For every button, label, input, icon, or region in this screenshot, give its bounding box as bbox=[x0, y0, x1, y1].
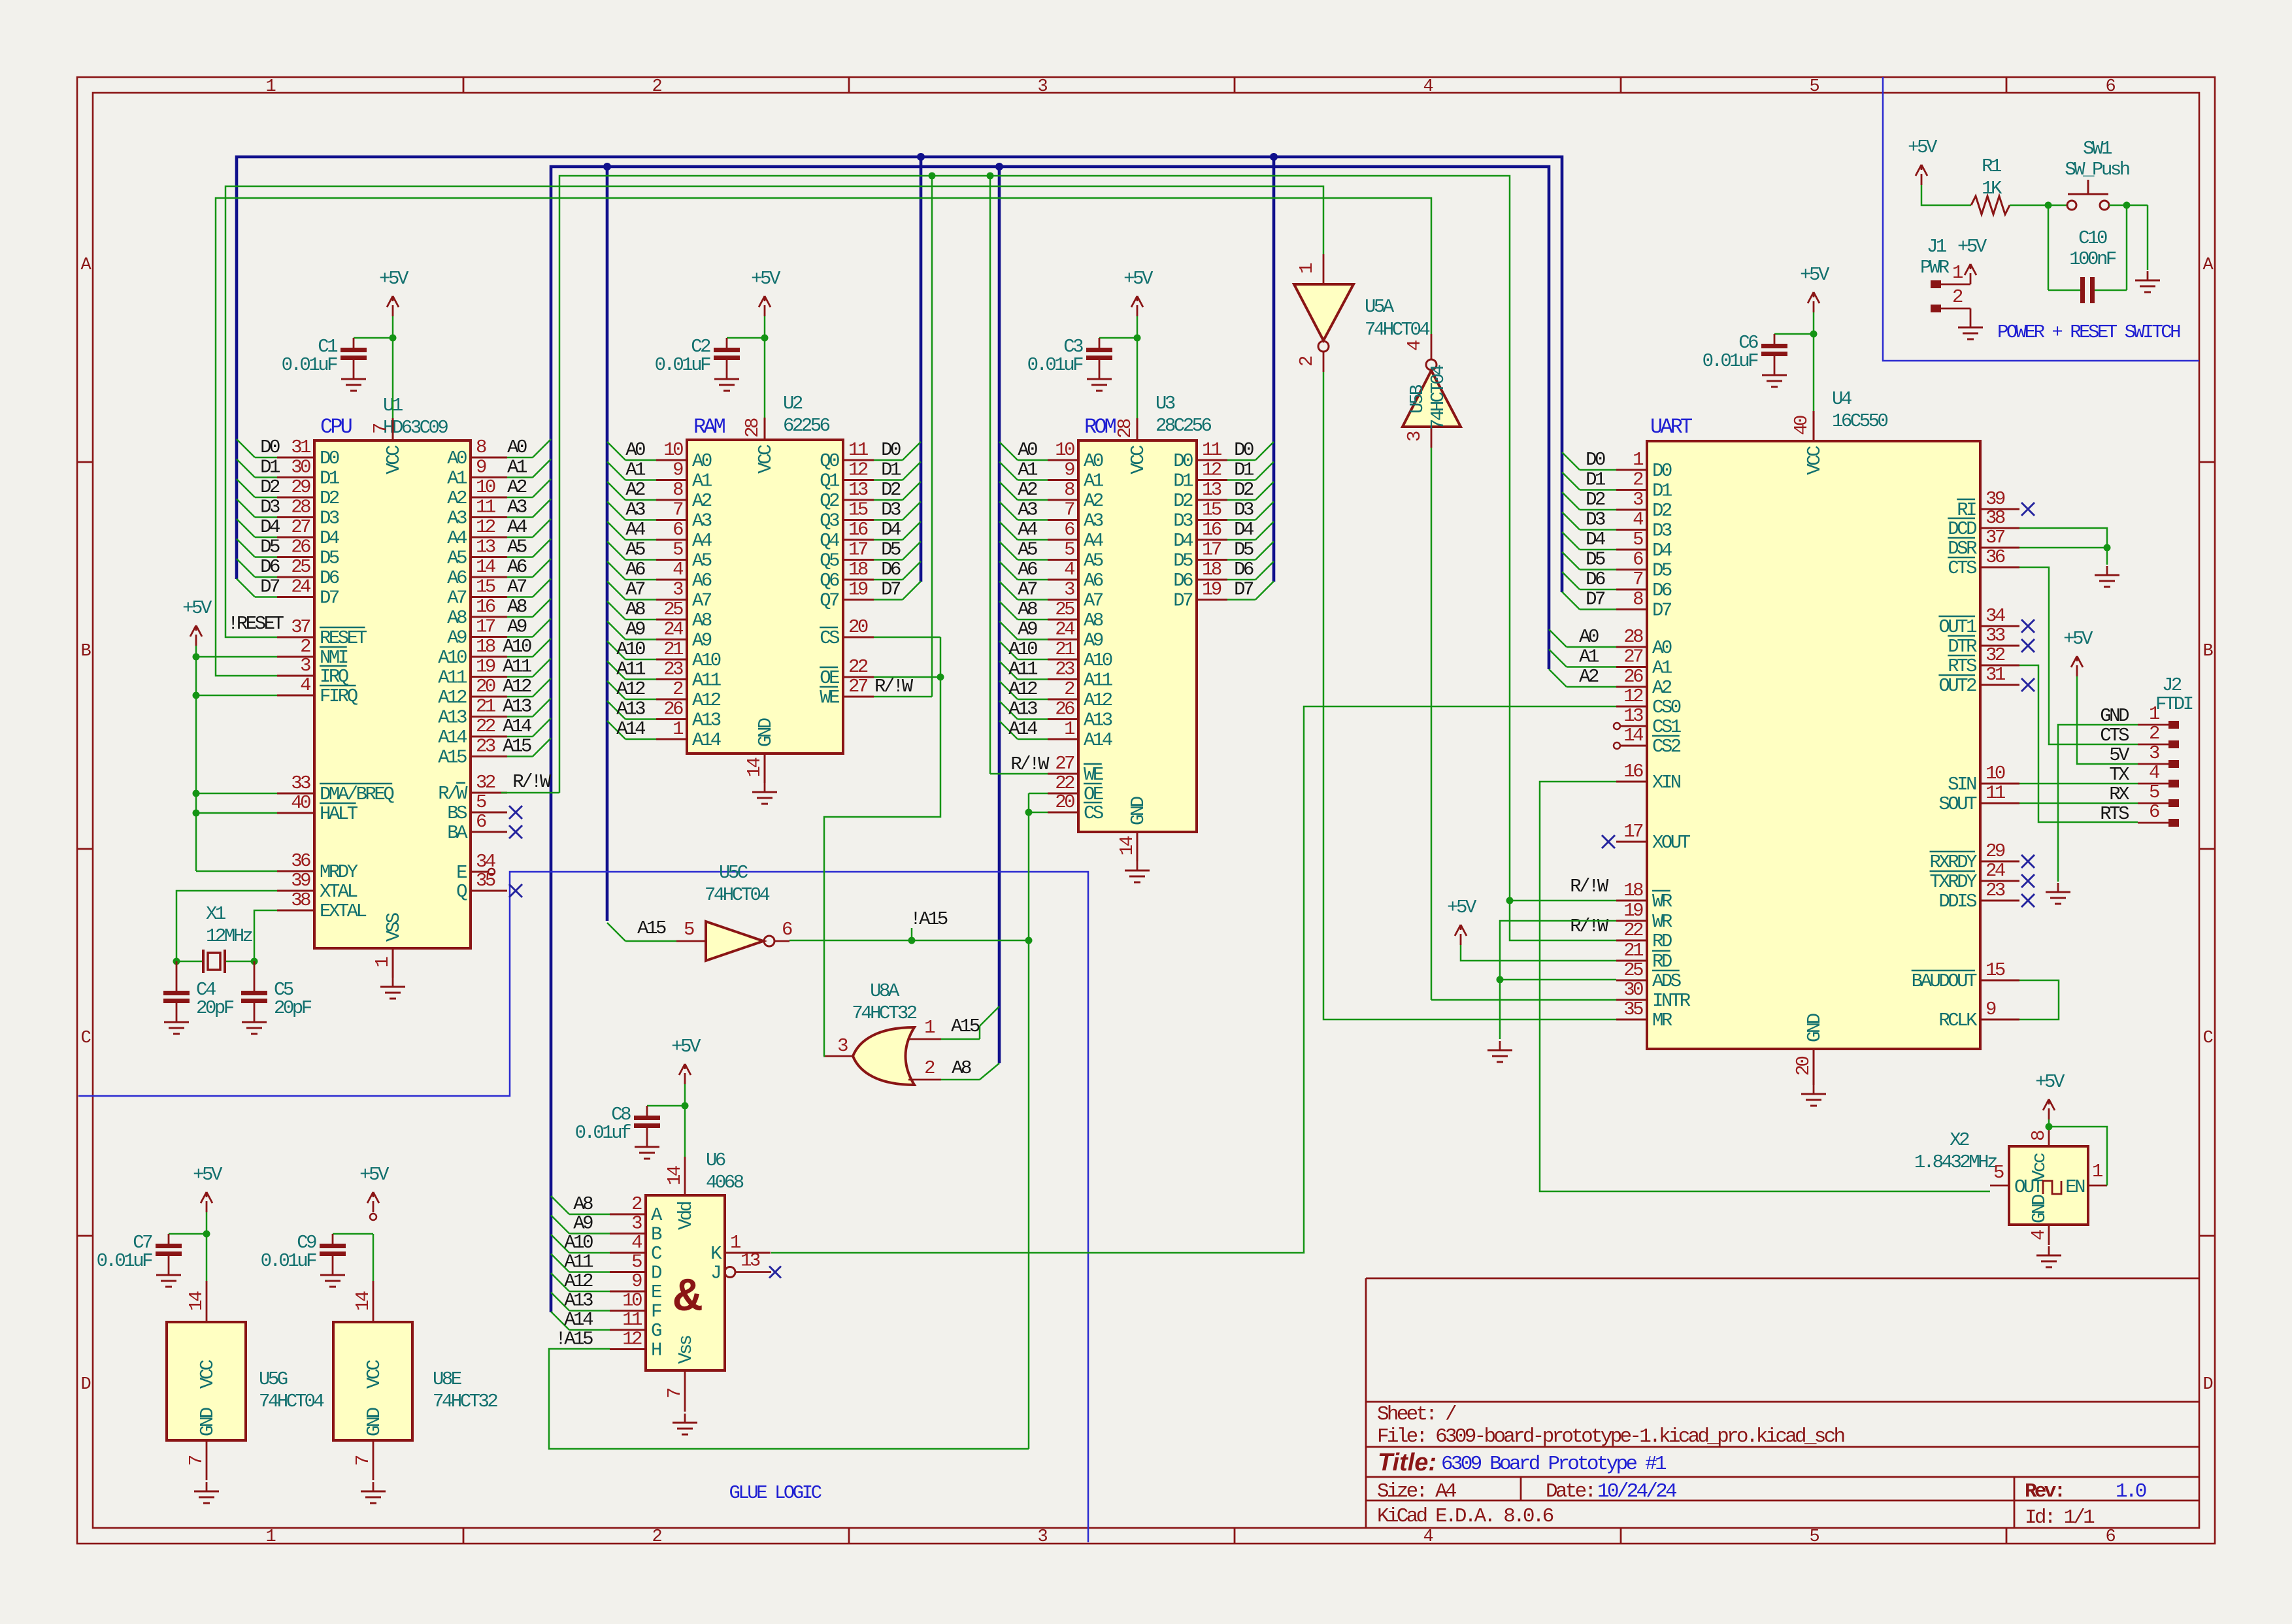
svg-text:13: 13 bbox=[740, 1250, 760, 1272]
svg-text:20: 20 bbox=[1055, 791, 1074, 813]
svg-text:A7: A7 bbox=[625, 579, 645, 601]
svg-text:A15: A15 bbox=[951, 1016, 980, 1037]
svg-text:40: 40 bbox=[291, 792, 310, 814]
svg-text:A3: A3 bbox=[507, 497, 527, 518]
svg-text:21: 21 bbox=[476, 696, 495, 718]
svg-text:11: 11 bbox=[1202, 439, 1221, 461]
svg-text:3: 3 bbox=[1038, 1527, 1048, 1547]
svg-text:5: 5 bbox=[1633, 529, 1643, 550]
svg-text:17: 17 bbox=[1202, 539, 1221, 561]
svg-text:CTS: CTS bbox=[2100, 725, 2129, 746]
svg-text:14: 14 bbox=[476, 556, 495, 578]
svg-text:6: 6 bbox=[2106, 1527, 2116, 1547]
svg-text:2: 2 bbox=[1296, 356, 1318, 367]
svg-text:RCLK: RCLK bbox=[1938, 1010, 1978, 1031]
svg-text:Q2: Q2 bbox=[820, 490, 839, 512]
svg-text:Size: A4: Size: A4 bbox=[1377, 1480, 1457, 1503]
svg-text:BS: BS bbox=[447, 803, 467, 824]
svg-text:25: 25 bbox=[1055, 599, 1074, 620]
svg-text:13: 13 bbox=[1623, 705, 1643, 727]
svg-text:8: 8 bbox=[2028, 1131, 2050, 1141]
svg-text:U3: U3 bbox=[1155, 393, 1175, 414]
svg-text:A5: A5 bbox=[447, 548, 467, 569]
svg-text:MRDY: MRDY bbox=[320, 861, 358, 883]
svg-text:!A15: !A15 bbox=[555, 1329, 593, 1350]
svg-text:A13: A13 bbox=[564, 1290, 593, 1312]
svg-text:A9: A9 bbox=[1084, 630, 1103, 652]
svg-text:A13: A13 bbox=[692, 710, 721, 731]
svg-text:U5A: U5A bbox=[1365, 296, 1395, 318]
svg-text:74HCT04: 74HCT04 bbox=[259, 1391, 324, 1412]
svg-text:Q4: Q4 bbox=[820, 530, 839, 552]
svg-text:9: 9 bbox=[1064, 459, 1074, 481]
svg-text:D5: D5 bbox=[320, 548, 339, 569]
svg-text:12: 12 bbox=[1623, 686, 1643, 707]
svg-text:D4: D4 bbox=[1652, 540, 1672, 561]
svg-text:14: 14 bbox=[1116, 836, 1138, 855]
svg-text:0.01uf: 0.01uf bbox=[575, 1122, 631, 1144]
svg-text:23: 23 bbox=[1985, 880, 2005, 901]
svg-text:A9: A9 bbox=[447, 627, 467, 649]
svg-text:D3: D3 bbox=[1173, 510, 1193, 532]
svg-text:1: 1 bbox=[1952, 262, 1963, 284]
svg-text:5: 5 bbox=[2149, 782, 2159, 803]
svg-text:Q1: Q1 bbox=[820, 471, 839, 492]
svg-text:A12: A12 bbox=[616, 678, 645, 700]
svg-text:36: 36 bbox=[291, 850, 310, 872]
svg-text:CS0: CS0 bbox=[1652, 697, 1681, 718]
svg-text:RX: RX bbox=[2109, 784, 2129, 805]
svg-text:BA: BA bbox=[447, 822, 468, 844]
svg-text:28: 28 bbox=[1623, 626, 1643, 648]
svg-text:A12: A12 bbox=[438, 687, 467, 708]
svg-text:21: 21 bbox=[1055, 638, 1074, 660]
svg-text:A0: A0 bbox=[1084, 450, 1103, 472]
svg-text:25: 25 bbox=[291, 556, 310, 578]
svg-text:+5V: +5V bbox=[182, 597, 212, 619]
svg-text:A8: A8 bbox=[692, 610, 712, 631]
svg-text:3: 3 bbox=[673, 579, 683, 601]
svg-text:1: 1 bbox=[372, 957, 393, 967]
svg-text:15: 15 bbox=[476, 576, 495, 598]
svg-text:GND: GND bbox=[197, 1408, 218, 1436]
svg-text:38: 38 bbox=[291, 889, 310, 911]
svg-text:6: 6 bbox=[1633, 549, 1643, 571]
svg-text:8: 8 bbox=[673, 479, 683, 501]
svg-text:1.0: 1.0 bbox=[2116, 1480, 2146, 1503]
svg-text:+5V: +5V bbox=[1957, 236, 1987, 257]
svg-text:A14: A14 bbox=[616, 718, 645, 740]
svg-text:GND: GND bbox=[1804, 1014, 1825, 1042]
svg-text:A6: A6 bbox=[625, 559, 645, 580]
svg-text:A1: A1 bbox=[447, 468, 467, 489]
svg-text:XIN: XIN bbox=[1652, 772, 1681, 793]
svg-text:A4: A4 bbox=[692, 530, 712, 552]
svg-text:18: 18 bbox=[848, 559, 868, 580]
svg-text:A3: A3 bbox=[625, 499, 645, 521]
svg-text:0.01uF: 0.01uF bbox=[282, 354, 338, 376]
svg-text:MR: MR bbox=[1652, 1010, 1672, 1031]
svg-text:6: 6 bbox=[782, 919, 792, 940]
svg-text:5: 5 bbox=[673, 539, 683, 561]
svg-text:D1: D1 bbox=[320, 468, 339, 489]
svg-text:0.01uF: 0.01uF bbox=[261, 1250, 317, 1272]
svg-text:A8: A8 bbox=[625, 599, 645, 620]
svg-text:20: 20 bbox=[848, 616, 868, 638]
svg-text:WE: WE bbox=[820, 687, 839, 708]
svg-text:Vdd: Vdd bbox=[675, 1202, 697, 1230]
svg-text:+5V: +5V bbox=[1123, 268, 1154, 290]
svg-text:+5V: +5V bbox=[359, 1164, 390, 1185]
svg-text:DSR: DSR bbox=[1948, 538, 1977, 559]
svg-text:10: 10 bbox=[1055, 439, 1074, 461]
svg-text:U8A: U8A bbox=[870, 980, 900, 1002]
svg-text:11: 11 bbox=[476, 497, 495, 518]
svg-text:26: 26 bbox=[663, 699, 683, 720]
svg-text:A15: A15 bbox=[503, 736, 531, 757]
svg-text:GND: GND bbox=[2100, 705, 2129, 727]
svg-text:INTR: INTR bbox=[1652, 990, 1691, 1012]
svg-text:4: 4 bbox=[1423, 1527, 1433, 1547]
svg-text:6: 6 bbox=[673, 519, 683, 540]
svg-text:TXRDY: TXRDY bbox=[1929, 871, 1977, 893]
svg-text:RESET: RESET bbox=[320, 627, 367, 649]
svg-text:D1: D1 bbox=[1586, 469, 1605, 491]
svg-text:28: 28 bbox=[291, 497, 310, 518]
svg-text:32: 32 bbox=[476, 772, 495, 793]
svg-text:D3: D3 bbox=[1652, 520, 1672, 542]
svg-text:D6: D6 bbox=[1234, 559, 1254, 580]
svg-text:D4: D4 bbox=[881, 519, 901, 540]
svg-text:A14: A14 bbox=[1008, 718, 1037, 740]
svg-text:27: 27 bbox=[1623, 646, 1643, 668]
svg-text:28: 28 bbox=[1114, 419, 1136, 439]
svg-text:A0: A0 bbox=[1018, 439, 1037, 461]
svg-text:R/!W: R/!W bbox=[1570, 876, 1609, 897]
svg-text:Vcc: Vcc bbox=[2029, 1153, 2050, 1182]
svg-text:0.01uF: 0.01uF bbox=[655, 354, 711, 376]
svg-text:25: 25 bbox=[663, 599, 683, 620]
svg-text:UART: UART bbox=[1650, 415, 1692, 439]
svg-text:D: D bbox=[2203, 1375, 2213, 1395]
svg-text:A14: A14 bbox=[1084, 729, 1112, 751]
svg-text:A15: A15 bbox=[438, 747, 467, 769]
svg-text:D6: D6 bbox=[881, 559, 901, 580]
svg-text:D: D bbox=[651, 1263, 661, 1284]
svg-text:20pF: 20pF bbox=[196, 997, 234, 1019]
svg-text:+5V: +5V bbox=[2035, 1071, 2065, 1093]
svg-text:37: 37 bbox=[1985, 527, 2005, 548]
svg-text:3: 3 bbox=[1633, 489, 1643, 510]
svg-text:1: 1 bbox=[1064, 718, 1074, 740]
svg-text:D0: D0 bbox=[1173, 450, 1193, 472]
svg-text:5: 5 bbox=[1993, 1162, 2004, 1184]
svg-text:GND: GND bbox=[2029, 1195, 2050, 1223]
svg-text:VCC: VCC bbox=[755, 444, 776, 474]
svg-text:D5: D5 bbox=[1234, 539, 1254, 561]
svg-text:4: 4 bbox=[300, 674, 310, 696]
svg-text:5: 5 bbox=[1810, 1527, 1819, 1547]
svg-text:9: 9 bbox=[631, 1270, 642, 1292]
svg-text:U2: U2 bbox=[783, 393, 803, 414]
svg-text:8: 8 bbox=[1633, 589, 1643, 610]
svg-text:A10: A10 bbox=[692, 650, 721, 671]
svg-text:D2: D2 bbox=[260, 476, 280, 498]
svg-text:Date:: Date: bbox=[1546, 1480, 1594, 1503]
svg-text:23: 23 bbox=[476, 736, 495, 757]
svg-text:D3: D3 bbox=[1586, 509, 1605, 531]
svg-text:6: 6 bbox=[476, 811, 486, 833]
svg-text:A10: A10 bbox=[564, 1232, 593, 1253]
svg-text:RAM: RAM bbox=[693, 415, 725, 439]
svg-text:14: 14 bbox=[744, 757, 765, 777]
svg-text:R/!W: R/!W bbox=[512, 771, 552, 793]
svg-text:100nF: 100nF bbox=[2069, 248, 2116, 270]
svg-text:28: 28 bbox=[742, 418, 763, 438]
svg-text:DCD: DCD bbox=[1948, 518, 1976, 540]
svg-text:19: 19 bbox=[1202, 579, 1221, 601]
svg-text:D0: D0 bbox=[1652, 460, 1672, 482]
svg-text:8: 8 bbox=[476, 437, 486, 458]
svg-text:E: E bbox=[651, 1282, 661, 1303]
svg-text:D1: D1 bbox=[1173, 471, 1193, 492]
svg-text:A5: A5 bbox=[1084, 550, 1103, 572]
svg-text:A2: A2 bbox=[1652, 677, 1672, 699]
svg-text:5: 5 bbox=[1064, 539, 1074, 561]
svg-text:10: 10 bbox=[622, 1290, 642, 1312]
svg-text:A5: A5 bbox=[1018, 539, 1037, 561]
svg-text:26: 26 bbox=[291, 537, 310, 558]
svg-text:24: 24 bbox=[1055, 619, 1074, 640]
svg-text:14: 14 bbox=[186, 1291, 207, 1311]
svg-text:1: 1 bbox=[2092, 1161, 2102, 1182]
svg-text:7: 7 bbox=[664, 1388, 686, 1399]
svg-text:A9: A9 bbox=[625, 619, 645, 640]
svg-text:RTS: RTS bbox=[1948, 655, 1976, 677]
svg-text:Title:: Title: bbox=[1378, 1449, 1437, 1476]
svg-text:29: 29 bbox=[1985, 840, 2005, 862]
svg-text:D2: D2 bbox=[320, 488, 339, 509]
svg-text:OUT1: OUT1 bbox=[1938, 616, 1976, 638]
svg-text:5: 5 bbox=[631, 1251, 642, 1273]
svg-text:36: 36 bbox=[1985, 546, 2005, 568]
svg-text:SOUT: SOUT bbox=[1938, 793, 1977, 815]
svg-text:Sheet: /: Sheet: / bbox=[1377, 1403, 1456, 1426]
svg-text:A14: A14 bbox=[692, 729, 721, 751]
svg-text:A6: A6 bbox=[1084, 570, 1103, 591]
svg-text:D6: D6 bbox=[320, 567, 339, 589]
svg-text:A9: A9 bbox=[692, 630, 712, 652]
svg-text:14: 14 bbox=[1623, 725, 1643, 746]
svg-text:1: 1 bbox=[673, 718, 683, 740]
svg-text:SW_Push: SW_Push bbox=[2065, 159, 2129, 180]
svg-text:15: 15 bbox=[848, 499, 868, 521]
svg-text:A2: A2 bbox=[625, 479, 645, 501]
svg-text:CS: CS bbox=[820, 627, 839, 649]
svg-text:A3: A3 bbox=[692, 510, 712, 532]
svg-text:74HCT32: 74HCT32 bbox=[852, 1003, 916, 1024]
svg-text:11: 11 bbox=[1985, 782, 2005, 804]
svg-text:12: 12 bbox=[1202, 459, 1221, 481]
svg-text:15: 15 bbox=[1985, 959, 2005, 981]
svg-text:20: 20 bbox=[476, 676, 495, 697]
svg-text:4: 4 bbox=[1404, 340, 1425, 351]
svg-text:A2: A2 bbox=[447, 488, 467, 509]
svg-text:1: 1 bbox=[1633, 449, 1643, 471]
svg-text:FTDI: FTDI bbox=[2155, 693, 2193, 715]
svg-text:A14: A14 bbox=[503, 716, 531, 737]
svg-text:19: 19 bbox=[476, 656, 495, 678]
svg-text:27: 27 bbox=[848, 676, 868, 697]
svg-text:2: 2 bbox=[652, 77, 662, 97]
svg-text:39: 39 bbox=[291, 870, 310, 891]
svg-text:HALT: HALT bbox=[320, 803, 358, 825]
svg-text:A4: A4 bbox=[447, 527, 467, 549]
svg-text:R1: R1 bbox=[1982, 156, 2001, 177]
svg-text:D1: D1 bbox=[881, 459, 901, 481]
svg-text:D0: D0 bbox=[1586, 449, 1605, 471]
svg-text:PWR: PWR bbox=[1920, 257, 1950, 278]
svg-text:D7: D7 bbox=[1173, 590, 1193, 612]
svg-text:D2: D2 bbox=[1234, 479, 1254, 501]
svg-text:A4: A4 bbox=[1084, 530, 1103, 552]
svg-text:27: 27 bbox=[291, 516, 310, 538]
svg-text:A10: A10 bbox=[616, 638, 645, 660]
svg-text:D0: D0 bbox=[260, 437, 280, 458]
svg-text:3: 3 bbox=[2149, 742, 2159, 764]
svg-text:A2: A2 bbox=[1018, 479, 1037, 501]
svg-text:!RESET: !RESET bbox=[227, 613, 284, 635]
svg-text:D0: D0 bbox=[1234, 439, 1254, 461]
svg-text:A0: A0 bbox=[692, 450, 712, 472]
svg-text:30: 30 bbox=[1623, 979, 1643, 1001]
svg-text:A7: A7 bbox=[692, 590, 712, 612]
svg-text:WE: WE bbox=[1084, 764, 1103, 786]
svg-text:A8: A8 bbox=[1084, 610, 1103, 631]
svg-text:+5V: +5V bbox=[751, 268, 781, 290]
svg-text:13: 13 bbox=[848, 479, 868, 501]
svg-text:4: 4 bbox=[2028, 1230, 2050, 1240]
svg-text:C10: C10 bbox=[2078, 227, 2107, 249]
svg-text:62256: 62256 bbox=[783, 415, 830, 437]
svg-text:!A15: !A15 bbox=[910, 908, 948, 930]
svg-text:GND: GND bbox=[755, 718, 776, 747]
svg-text:D4: D4 bbox=[1586, 529, 1605, 550]
svg-text:OUT2: OUT2 bbox=[1938, 675, 1976, 697]
svg-text:A7: A7 bbox=[1084, 590, 1103, 612]
svg-text:D3: D3 bbox=[260, 497, 280, 518]
svg-text:A14: A14 bbox=[438, 727, 467, 748]
svg-text:12: 12 bbox=[848, 459, 868, 481]
svg-text:A12: A12 bbox=[564, 1270, 593, 1292]
svg-text:12MHz: 12MHz bbox=[206, 925, 253, 947]
svg-text:D: D bbox=[81, 1375, 91, 1395]
svg-text:D2: D2 bbox=[1586, 489, 1605, 510]
svg-text:D6: D6 bbox=[1586, 569, 1605, 590]
svg-text:2: 2 bbox=[924, 1057, 935, 1079]
svg-text:2: 2 bbox=[631, 1193, 642, 1215]
svg-text:D4: D4 bbox=[1173, 530, 1193, 552]
svg-text:VSS: VSS bbox=[383, 913, 405, 942]
svg-text:3: 3 bbox=[1404, 431, 1425, 442]
svg-text:2: 2 bbox=[1952, 286, 1963, 308]
svg-text:5: 5 bbox=[1810, 77, 1819, 97]
svg-text:A2: A2 bbox=[507, 476, 527, 498]
svg-text:Id: 1/1: Id: 1/1 bbox=[2025, 1506, 2095, 1529]
svg-text:22: 22 bbox=[1623, 920, 1643, 941]
svg-text:A7: A7 bbox=[1018, 579, 1037, 601]
svg-text:32: 32 bbox=[1985, 644, 2005, 666]
svg-text:Q5: Q5 bbox=[820, 550, 839, 572]
svg-text:WR: WR bbox=[1652, 891, 1672, 912]
svg-text:A7: A7 bbox=[507, 576, 527, 598]
svg-text:18: 18 bbox=[476, 636, 495, 657]
svg-text:33: 33 bbox=[1985, 625, 2005, 646]
svg-text:A12: A12 bbox=[692, 689, 721, 711]
svg-text:RD: RD bbox=[1652, 951, 1672, 972]
svg-text:1.8432MHz: 1.8432MHz bbox=[1914, 1152, 1997, 1173]
svg-text:A2: A2 bbox=[1084, 490, 1103, 512]
svg-text:VCC: VCC bbox=[363, 1359, 385, 1389]
svg-text:26: 26 bbox=[1055, 699, 1074, 720]
svg-text:D2: D2 bbox=[1652, 500, 1672, 522]
svg-text:RD: RD bbox=[1652, 931, 1672, 952]
svg-text:A3: A3 bbox=[1084, 510, 1103, 532]
svg-text:A11: A11 bbox=[503, 656, 531, 678]
svg-text:D7: D7 bbox=[1234, 579, 1254, 601]
svg-text:+5V: +5V bbox=[379, 268, 409, 290]
svg-text:A1: A1 bbox=[507, 457, 527, 478]
svg-text:A13: A13 bbox=[503, 696, 531, 718]
svg-text:7: 7 bbox=[370, 423, 391, 434]
svg-text:A3: A3 bbox=[447, 508, 467, 529]
svg-text:A13: A13 bbox=[1008, 699, 1037, 720]
svg-text:VCC: VCC bbox=[1804, 446, 1825, 475]
svg-text:37: 37 bbox=[291, 616, 310, 638]
svg-text:ADS: ADS bbox=[1652, 970, 1681, 992]
svg-text:Rev:: Rev: bbox=[2025, 1480, 2063, 1503]
svg-text:7: 7 bbox=[673, 499, 683, 521]
svg-text:A11: A11 bbox=[564, 1251, 593, 1273]
svg-text:A11: A11 bbox=[616, 659, 645, 680]
svg-text:A12: A12 bbox=[1084, 689, 1112, 711]
svg-text:A13: A13 bbox=[1084, 710, 1112, 731]
svg-text:12: 12 bbox=[476, 516, 495, 538]
svg-text:A4: A4 bbox=[625, 519, 645, 540]
svg-text:15: 15 bbox=[1202, 499, 1221, 521]
svg-text:A9: A9 bbox=[507, 616, 527, 638]
svg-text:21: 21 bbox=[663, 638, 683, 660]
svg-text:25: 25 bbox=[1623, 959, 1643, 981]
svg-text:XOUT: XOUT bbox=[1652, 832, 1691, 853]
svg-text:R/!W: R/!W bbox=[874, 676, 914, 697]
svg-text:31: 31 bbox=[1985, 664, 2005, 686]
svg-text:D4: D4 bbox=[1234, 519, 1254, 540]
svg-text:VCC: VCC bbox=[197, 1359, 218, 1389]
svg-text:35: 35 bbox=[1623, 999, 1643, 1020]
svg-text:A10: A10 bbox=[1084, 650, 1112, 671]
svg-text:34: 34 bbox=[1985, 605, 2005, 627]
svg-text:A1: A1 bbox=[1018, 459, 1037, 481]
svg-text:17: 17 bbox=[848, 539, 868, 561]
svg-text:CS: CS bbox=[1084, 803, 1103, 824]
svg-text:A3: A3 bbox=[1018, 499, 1037, 521]
svg-text:A1: A1 bbox=[1084, 471, 1103, 492]
svg-text:Vss: Vss bbox=[675, 1335, 697, 1364]
svg-text:4: 4 bbox=[631, 1232, 642, 1253]
svg-text:D5: D5 bbox=[1586, 549, 1605, 571]
svg-text:U4: U4 bbox=[1832, 388, 1852, 410]
